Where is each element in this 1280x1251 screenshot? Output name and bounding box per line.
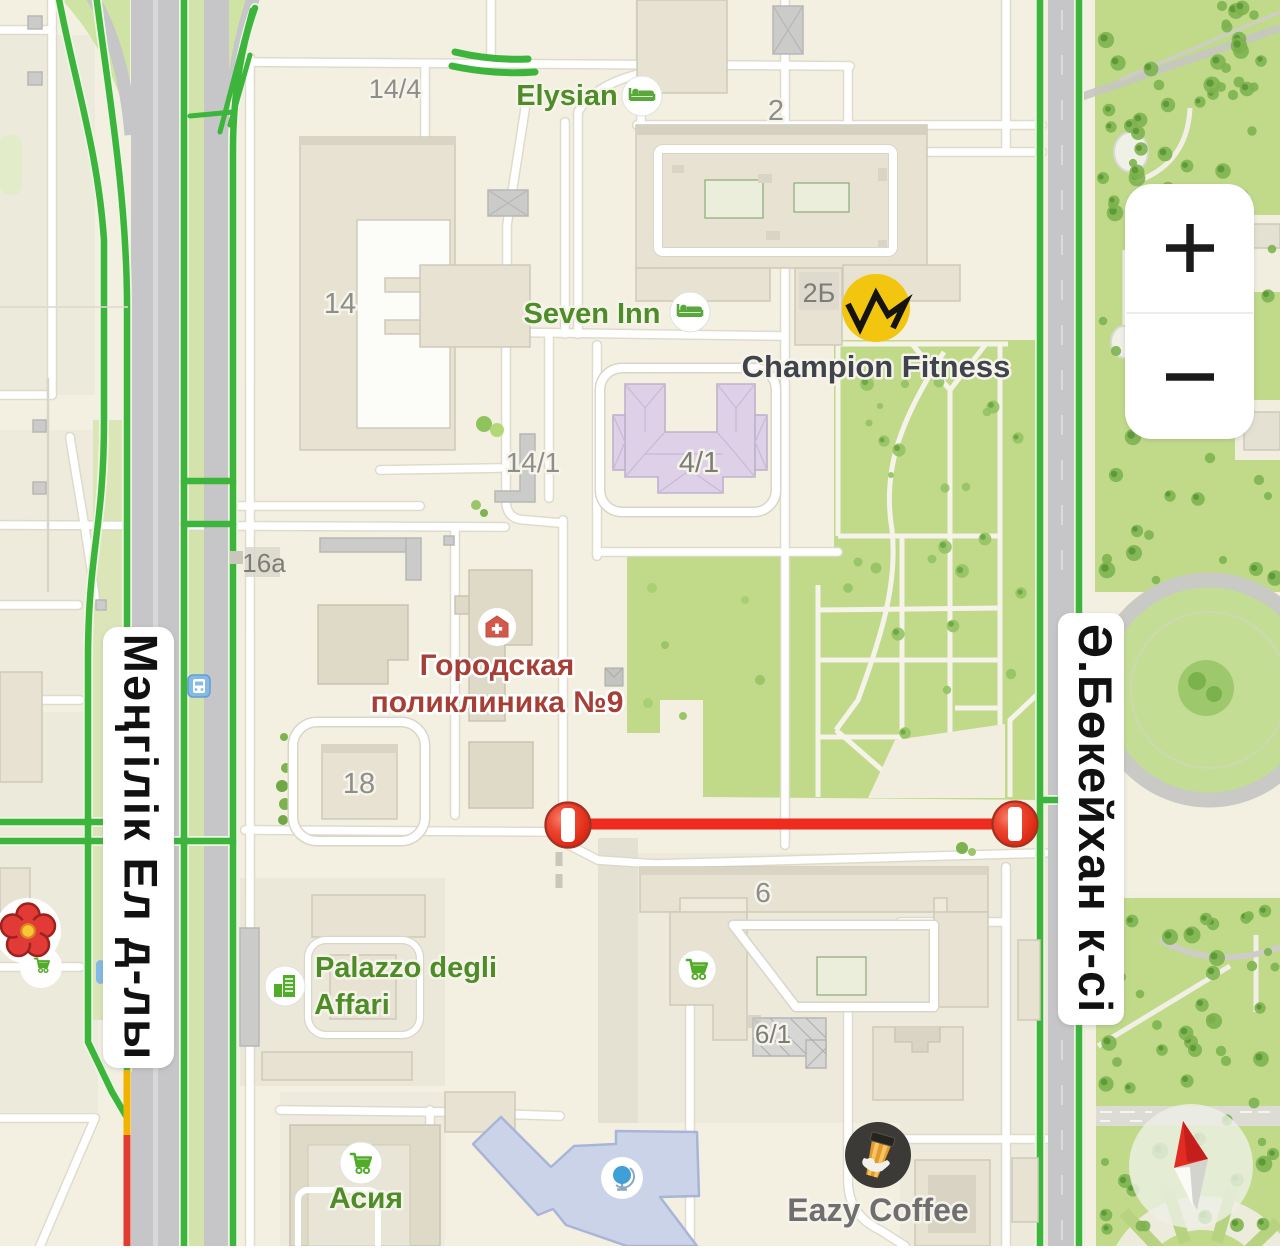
svg-text:4/1: 4/1: [679, 447, 719, 479]
svg-text:Асия: Асия: [329, 1182, 403, 1215]
svg-text:поликлиника №9: поликлиника №9: [371, 686, 624, 719]
svg-text:Affari: Affari: [314, 989, 390, 1021]
svg-text:14/4: 14/4: [369, 74, 422, 104]
svg-text:Palazzo degli: Palazzo degli: [315, 952, 497, 984]
svg-text:Ә.Бөкейхан к-сі: Ә.Бөкейхан к-сі: [1069, 624, 1122, 1014]
svg-text:Elysian: Elysian: [516, 80, 618, 112]
svg-text:18: 18: [343, 768, 375, 800]
svg-text:Eazy Coffee: Eazy Coffee: [787, 1192, 968, 1228]
svg-text:2Б: 2Б: [803, 278, 836, 308]
svg-text:6/1: 6/1: [755, 1019, 791, 1049]
svg-text:14/1: 14/1: [506, 447, 561, 478]
svg-text:Мәңгілік Ел д-лы: Мәңгілік Ел д-лы: [115, 634, 168, 1062]
svg-text:2: 2: [768, 95, 784, 127]
svg-text:14: 14: [324, 288, 356, 320]
svg-text:16a: 16a: [242, 548, 286, 578]
svg-text:Городская: Городская: [420, 649, 575, 682]
svg-text:6: 6: [755, 877, 771, 908]
svg-text:Seven Inn: Seven Inn: [524, 298, 661, 330]
svg-text:Champion Fitness: Champion Fitness: [742, 349, 1011, 384]
